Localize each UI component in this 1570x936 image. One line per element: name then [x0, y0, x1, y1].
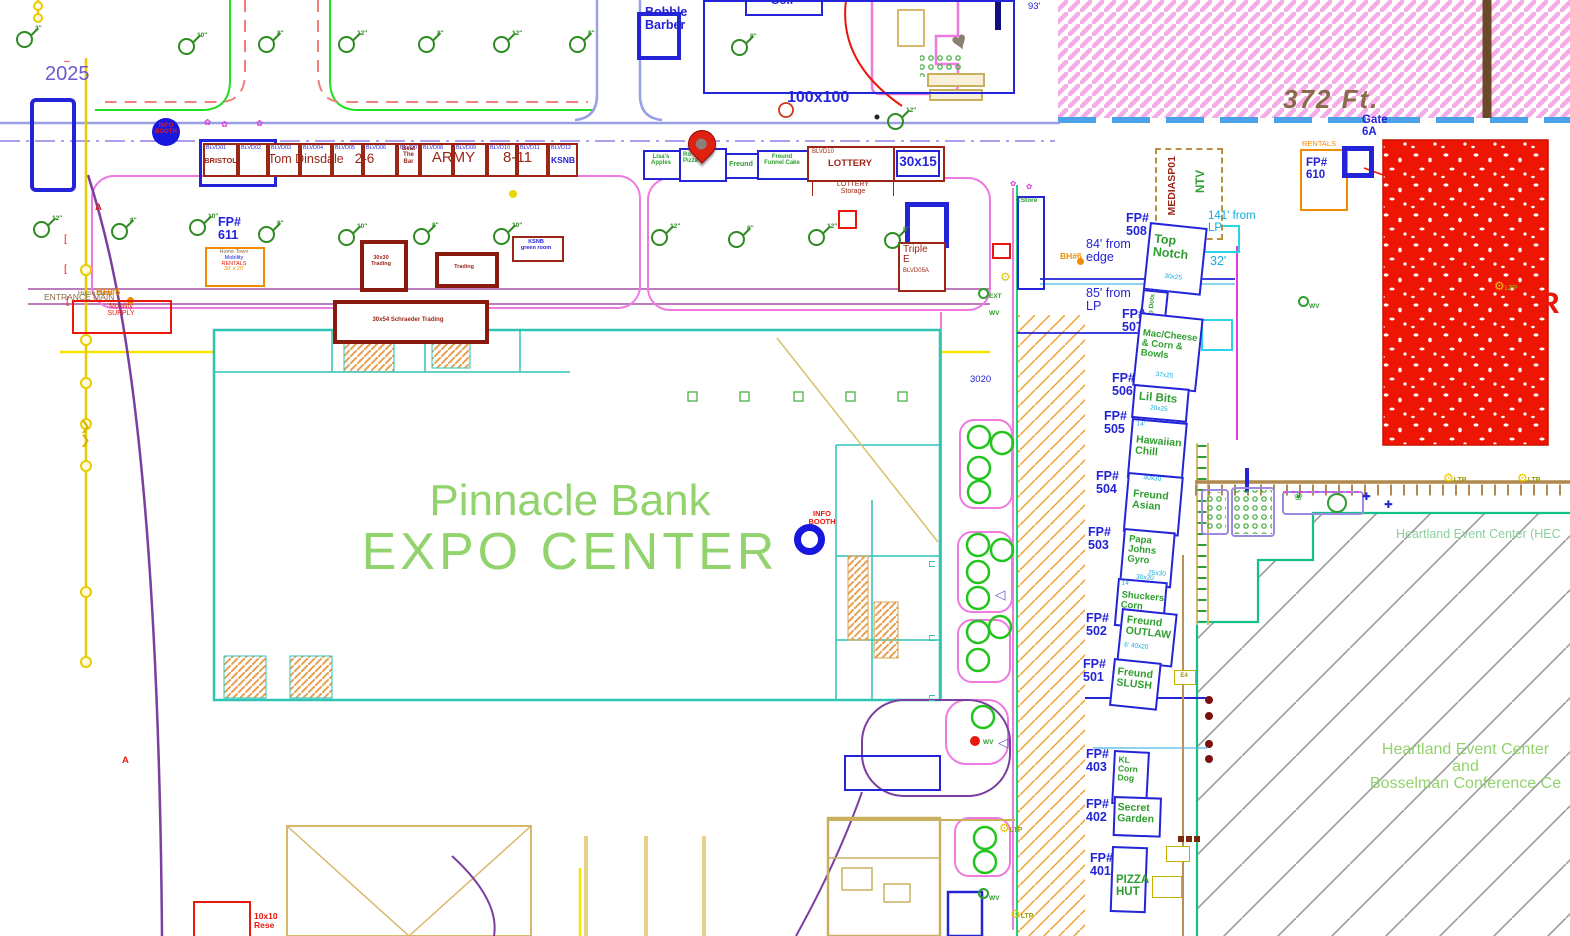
parking-tick: ⊏: [928, 634, 936, 644]
booth-blvd02[interactable]: BLVD02: [238, 143, 268, 177]
info-booth-road-label: INFOBOOTH: [150, 123, 182, 136]
parking-tick: ⊏: [928, 560, 936, 570]
tree-size-label: 10": [208, 213, 218, 220]
gate-block: [1342, 146, 1374, 178]
tree-icon: 10": [338, 229, 356, 247]
fp-502-label: FP#502: [1086, 612, 1109, 639]
distance-32: 32': [1210, 255, 1226, 268]
section-marker-a: A: [95, 203, 102, 213]
tree-size-label: 8": [747, 225, 754, 232]
wv-symbol: WV: [980, 888, 999, 905]
bus-stop-frame: [30, 98, 76, 192]
red-square: [992, 243, 1011, 259]
booth-freund-funnel-cake[interactable]: FreundFunnel Cake: [757, 150, 809, 180]
fp-402-label: FP#402: [1086, 798, 1109, 825]
expo-title-line2: EXPO CENTER: [362, 523, 779, 581]
tree-icon: 8": [418, 36, 436, 54]
cstore-booth[interactable]: [1017, 196, 1045, 290]
ltp-pole: ⚙LTP: [1517, 470, 1540, 487]
tree-icon: 12": [651, 229, 669, 247]
flower-icon: ✚: [1362, 492, 1371, 503]
fp-501-label: FP#501: [1083, 658, 1106, 685]
wv-symbol: WV: [1300, 296, 1319, 313]
red-restricted-area: [1383, 140, 1548, 445]
parking-tick: ⊏: [928, 694, 936, 704]
tree-icon: 8": [258, 226, 276, 244]
booth-lottery[interactable]: BLVD10 LOTTERY: [807, 146, 895, 182]
red-tick: –: [64, 56, 70, 67]
fp-611-label: FP#611: [218, 216, 241, 243]
distance-84-edge: 84' fromedge: [1086, 238, 1131, 265]
hec-small-label: Heartland Event Center (HEC: [1396, 528, 1561, 541]
golf-booth[interactable]: Golf: [745, 0, 823, 16]
tree-icon: 10": [189, 219, 207, 237]
tree-icon: 8": [731, 39, 749, 57]
tree-size-label: 8": [437, 30, 444, 37]
tree-size-label: 12": [52, 215, 62, 222]
tree-icon: 3": [16, 31, 34, 49]
vendor-lil-bits[interactable]: Lil Bits 20x25: [1131, 384, 1190, 423]
trading-booth-1[interactable]: 30x30Trading: [360, 240, 408, 292]
tree-size-label: 8": [432, 222, 439, 229]
flower-icon: ✿: [1026, 183, 1032, 191]
tree-size-label: 12": [512, 30, 522, 37]
booth-id: BLVD01: [206, 145, 226, 151]
booth-id: BLVD03: [271, 145, 291, 151]
expo-center-title: Pinnacle Bank EXPO CENTER: [280, 478, 860, 580]
fp-505-label: FP#505: [1104, 410, 1127, 437]
distance-372ft: 372 Ft.: [1283, 86, 1379, 114]
tree-size-label: 3": [35, 25, 42, 32]
flower-icon: ✿: [221, 120, 228, 129]
tenant-army: ARMY: [420, 150, 487, 166]
vendor-freund-slush[interactable]: FreundSLUSH: [1109, 658, 1162, 711]
tenant-bristol: BRISTOL: [203, 157, 238, 165]
chevron-icon: ❯: [80, 420, 90, 433]
tenant-2-6: 2-6: [332, 152, 397, 166]
section-marker-a: A: [122, 756, 129, 766]
tenant-8-11: 8-11: [487, 150, 548, 166]
marker-dot: [1178, 836, 1184, 842]
fp-401-label: FP#401: [1090, 852, 1113, 879]
tree-icon: 10": [178, 38, 196, 56]
vendor-top-notch[interactable]: TopNotch 30x25: [1143, 222, 1208, 296]
tree-size-label: 8": [750, 33, 757, 40]
tree-size-label: 12": [670, 223, 680, 230]
tree-icon: 12": [887, 113, 905, 131]
ltp-pole: ⚙LTP: [1443, 470, 1466, 487]
yellow-node: [509, 190, 517, 198]
fp-504-label: FP#504: [1096, 470, 1119, 497]
service-tag-e4: E4: [1174, 670, 1196, 685]
flower-icon: ✿: [204, 118, 211, 127]
distance-141-lp: 141' fromLP: [1208, 210, 1256, 234]
cstore-label: CStore: [1016, 198, 1037, 205]
marker-dot: [1194, 836, 1200, 842]
tree-icon: 8": [258, 36, 276, 54]
hometown-supply-title: Home Town: [78, 291, 112, 298]
expo-site-map: 2025 INFOBOOTH A A [ [ [ – ✿ ✿ ✿ ✿ ✿ BLV…: [0, 0, 1570, 936]
gate-6a-label: Gate6A: [1362, 114, 1388, 138]
vendor-freund-asian[interactable]: 40x30 FreundAsian: [1123, 472, 1184, 537]
pizza-hut-label: PIZZAHUT: [1116, 874, 1149, 898]
hec-big-label: Heartland Event CenterandBosselman Confe…: [1358, 742, 1570, 793]
fp-506-label: FP#506: [1112, 372, 1135, 399]
tree-size-label: 8": [277, 30, 284, 37]
street-number-3020: 3020: [970, 375, 991, 385]
booth-id: BLVD02: [241, 145, 261, 151]
tenant-tom-dinsdale: Tom Dinsdale: [268, 153, 332, 166]
schraeder-trading-booth[interactable]: 30x54 Schraeder Trading: [333, 300, 489, 344]
bh6-node: [1077, 258, 1084, 265]
red-tick: [: [64, 234, 67, 245]
chevron-icon: ❯: [80, 434, 90, 447]
tree-size-label: 12": [357, 30, 367, 37]
red-square: [838, 210, 857, 229]
hometown-supply-box[interactable]: Mobility SUPPLY: [72, 300, 172, 334]
media-label: NTV: [1195, 170, 1207, 193]
tree-size-label: 10": [512, 222, 522, 229]
flower-icon: ✿: [256, 119, 263, 128]
hatch-regions: [1017, 0, 1570, 936]
hometown-rentals-box[interactable]: Home Town Mobility RENTALS 30' x 20': [205, 247, 265, 287]
info-booth-marker[interactable]: [794, 524, 825, 555]
bobble-barber-label: BobbleBarber: [645, 6, 687, 33]
ext-wv-symbol: EXT WV: [980, 286, 1002, 320]
booth-id: BLVD05: [335, 145, 355, 151]
hydrant-icon: [970, 736, 980, 746]
tree-size-label: 12": [906, 107, 916, 114]
tree-icon: 8": [728, 231, 746, 249]
reserved-10x10-label: 10x10Rese: [254, 912, 278, 930]
media-label: MEDIASP01: [1167, 156, 1178, 216]
lottery-storage-label: LOTTERYStorage: [812, 181, 894, 196]
red-tick: [: [64, 264, 67, 275]
cut-red-letter: R: [1538, 288, 1560, 320]
expo-title-line1: Pinnacle Bank: [429, 476, 710, 525]
service-tag: [1152, 876, 1182, 898]
reserved-box: [193, 901, 251, 936]
year-label: 2025: [45, 64, 90, 85]
flower-icon: ✿: [1010, 180, 1016, 188]
fp-508-label: FP#508: [1126, 212, 1149, 239]
ltp-pole: ⚙LTP: [1494, 278, 1517, 295]
triple-e-booth[interactable]: TripleE BLVD05A: [898, 242, 946, 292]
tenant-beat-the-bar: BeatTheBar: [397, 146, 420, 165]
flower-icon: ✚: [1384, 500, 1393, 511]
booth-id: BLVD04: [303, 145, 323, 151]
gear-icon: ⚙: [1000, 271, 1011, 284]
tree-icon: 12": [808, 229, 826, 247]
tenant-ksnb: KSNB: [548, 156, 578, 165]
booth-lisas-apples[interactable]: Lisa'sApples: [643, 150, 681, 180]
vendor-mac-cheese[interactable]: Mac/Cheese& Corn &Bowls 37x25: [1132, 312, 1203, 392]
tree-size-label: 10": [197, 32, 207, 39]
booth-30x15[interactable]: 30x15: [893, 146, 945, 182]
fp-503-label: FP#503: [1088, 526, 1111, 553]
service-tag: [1166, 846, 1190, 862]
south-structures: [287, 756, 1015, 936]
booth-id: BLVD12: [551, 145, 571, 151]
ksnb-green-room-box[interactable]: KSNBgreen room: [512, 236, 564, 262]
tree-icon: 8": [111, 223, 129, 241]
fp-403-label: FP#403: [1086, 748, 1109, 775]
tree-size-label: 12": [827, 223, 837, 230]
hydrant-wv-label: WV: [983, 740, 993, 747]
tree-size-label: 10": [357, 223, 367, 230]
vendor-secret-garden[interactable]: SecretGarden: [1113, 796, 1162, 838]
size-100x100-label: 100x100: [787, 90, 849, 107]
flower-icon: ❀: [1294, 492, 1303, 503]
trading-booth-2[interactable]: Trading: [435, 252, 499, 288]
flow-arrow-icon: ◁: [995, 588, 1005, 602]
tree-size-label: 8": [903, 226, 910, 233]
tree-size-label: 8": [130, 217, 137, 224]
ltp-pole: ⚙LTP: [1010, 906, 1033, 923]
tree-size-label: 8": [588, 30, 595, 37]
distance-93: 93': [1028, 2, 1040, 12]
marker-dot: [1186, 836, 1192, 842]
tree-icon: 8": [884, 232, 902, 250]
tree-icon: 12": [33, 221, 51, 239]
tree-icon: 8": [413, 228, 431, 246]
info-booth-label: INFOBOOTH: [796, 510, 848, 526]
tree-size-label: 8": [277, 220, 284, 227]
fp-610-booth[interactable]: FP#610: [1300, 149, 1348, 211]
ltp-pole: ⚙LTP: [999, 820, 1022, 837]
tree-icon: 8": [569, 36, 587, 54]
tree-icon: 12": [493, 36, 511, 54]
booth-freund[interactable]: Freund: [725, 153, 759, 179]
booth-id: BLVD10: [812, 149, 834, 155]
tree-icon: 10": [493, 228, 511, 246]
tree-icon: 12": [338, 36, 356, 54]
flow-arrow-icon: ◁: [998, 736, 1008, 750]
rentals-tag: RENTALS: [1302, 140, 1336, 148]
